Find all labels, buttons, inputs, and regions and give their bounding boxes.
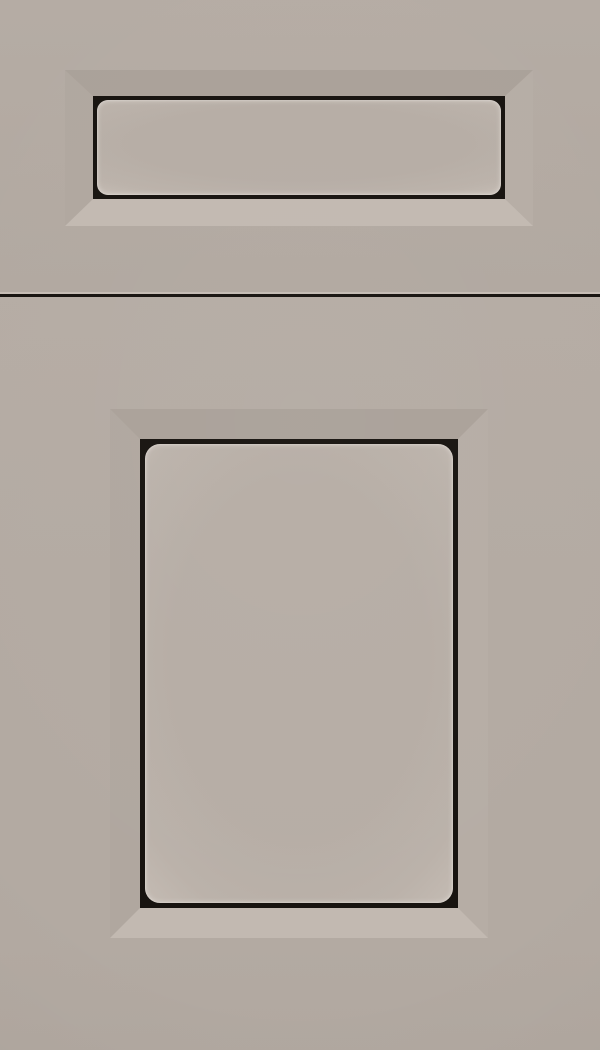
drawer-center-panel bbox=[97, 100, 501, 195]
drawer-bevel-frame bbox=[65, 70, 533, 226]
door-bevel-frame bbox=[110, 409, 488, 938]
door-center-panel bbox=[145, 444, 453, 903]
drawer-front bbox=[0, 0, 600, 292]
cabinet-door bbox=[0, 297, 600, 1050]
cabinet-sample-photo bbox=[0, 0, 600, 1050]
